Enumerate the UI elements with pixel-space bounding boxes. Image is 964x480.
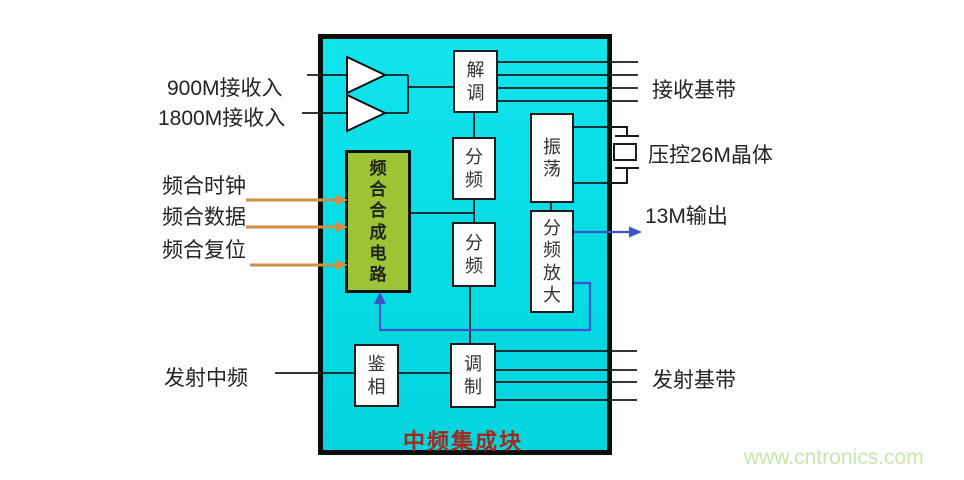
label-synth-reset: 频合复位 (162, 234, 246, 264)
block-phase-detector-label: 鉴相 (367, 353, 386, 398)
arrow-13m-icon (629, 227, 642, 238)
label-rx-900m: 900M接收入 (167, 72, 283, 102)
crystal-icon (608, 127, 639, 183)
block-demodulator: 解调 (453, 50, 498, 113)
label-tx-baseband: 发射基带 (652, 364, 736, 394)
label-rx-baseband: 接收基带 (652, 74, 736, 104)
block-modulator: 调制 (450, 343, 496, 408)
label-13m-output: 13M输出 (645, 200, 728, 230)
block-phase-detector: 鉴相 (354, 344, 399, 407)
block-divider-2: 分频 (452, 222, 496, 287)
block-frequency-synthesizer: 频合合成电路 (345, 150, 411, 293)
block-frequency-synthesizer-label: 频合合成电路 (369, 158, 387, 286)
block-divider-2-label: 分频 (464, 232, 483, 277)
block-oscillator: 振荡 (530, 113, 574, 203)
module-title: 中频集成块 (403, 424, 523, 456)
block-oscillator-label: 振荡 (542, 136, 561, 181)
label-vcxo-crystal: 压控26M晶体 (648, 139, 773, 169)
block-divider-1: 分频 (452, 137, 496, 200)
block-demodulator-label: 解调 (466, 59, 485, 104)
label-tx-if: 发射中频 (164, 362, 248, 392)
block-divider-amplifier: 分频放大 (530, 210, 574, 313)
watermark: www.cntronics.com (744, 446, 924, 470)
label-synth-clock: 频合时钟 (162, 170, 246, 200)
crystal-body (614, 144, 636, 160)
label-synth-data: 频合数据 (162, 201, 246, 231)
if-module-diagram: 频合合成电路 解调 分频 分频 振荡 分频放大 鉴相 调制 900M接收入 18… (0, 0, 964, 480)
block-divider-amplifier-label: 分频放大 (542, 217, 561, 307)
block-divider-1-label: 分频 (464, 146, 483, 191)
block-modulator-label: 调制 (463, 353, 482, 398)
label-rx-1800m: 1800M接收入 (158, 102, 285, 132)
